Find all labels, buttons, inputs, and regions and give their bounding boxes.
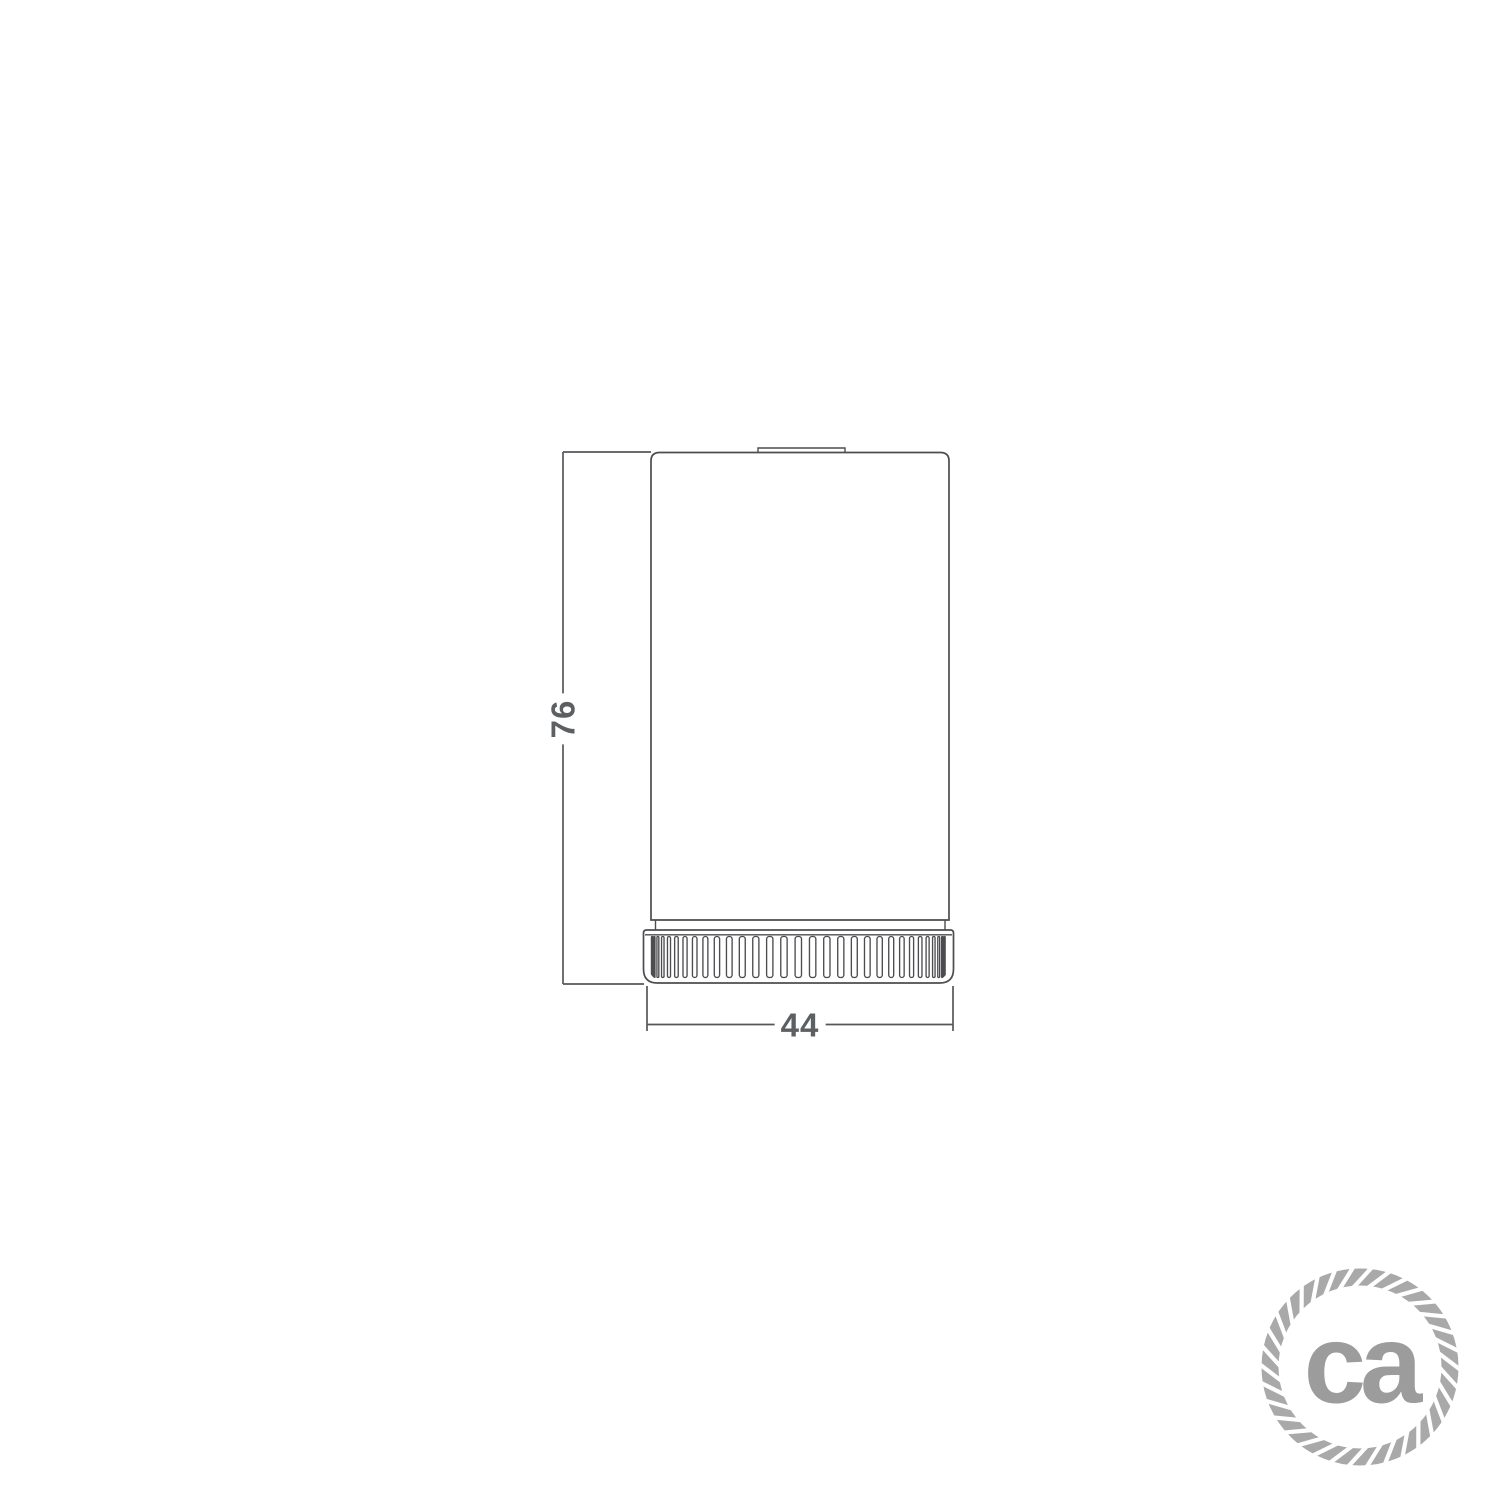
- knurl-rib: [657, 937, 659, 978]
- knurl-rib: [910, 937, 914, 978]
- knurl-rib: [753, 937, 759, 978]
- width-dimension-label: 44: [775, 1008, 826, 1043]
- height-dimension-label: 76: [546, 694, 581, 745]
- knurl-rib: [703, 937, 708, 978]
- knurl-rib: [654, 937, 655, 978]
- rope-twist-gap: [1418, 1314, 1449, 1317]
- knurl-rib: [864, 937, 870, 978]
- knurl-rib: [675, 937, 679, 978]
- knurl-rib: [944, 937, 945, 978]
- rope-twist-gap: [1402, 1430, 1408, 1461]
- knurl-ribs: [651, 937, 945, 978]
- knurl-rib: [692, 937, 697, 978]
- knurl-rib: [651, 937, 652, 978]
- knurl-rib: [767, 937, 773, 978]
- knurl-rib: [809, 937, 815, 978]
- knurled-ring-outline: [644, 930, 954, 983]
- knurl-rib: [795, 937, 801, 978]
- rope-twist-gap: [1312, 1273, 1318, 1304]
- knurl-rib: [900, 937, 905, 978]
- knurl-rib: [933, 937, 935, 978]
- knurl-rib: [714, 937, 719, 978]
- knurl-rib: [739, 937, 745, 978]
- knurl-rib: [662, 937, 664, 978]
- knurl-rib: [877, 937, 882, 978]
- drawing-svg: [0, 0, 1500, 1500]
- knurl-rib: [824, 937, 830, 978]
- knurl-rib: [926, 937, 929, 978]
- knurl-rib: [942, 937, 943, 978]
- knurl-rib: [667, 937, 670, 978]
- dimension-annotations: [563, 452, 953, 1031]
- lamp-holder-drawing: [644, 448, 954, 983]
- knurl-rib: [889, 937, 894, 978]
- technical-drawing-canvas: 76 44 ca: [0, 0, 1500, 1500]
- knurl-rib: [838, 937, 844, 978]
- knurl-rib: [683, 937, 687, 978]
- logo-monogram: ca: [1304, 1309, 1417, 1421]
- rope-twist-gap: [1281, 1430, 1312, 1433]
- knurl-rib: [781, 937, 787, 978]
- rope-twist-gap: [1271, 1417, 1302, 1420]
- knurl-rib: [918, 937, 922, 978]
- body-outline: [651, 453, 949, 921]
- knurl-rib: [851, 937, 857, 978]
- knurl-rib: [938, 937, 940, 978]
- knurl-rib: [726, 937, 732, 978]
